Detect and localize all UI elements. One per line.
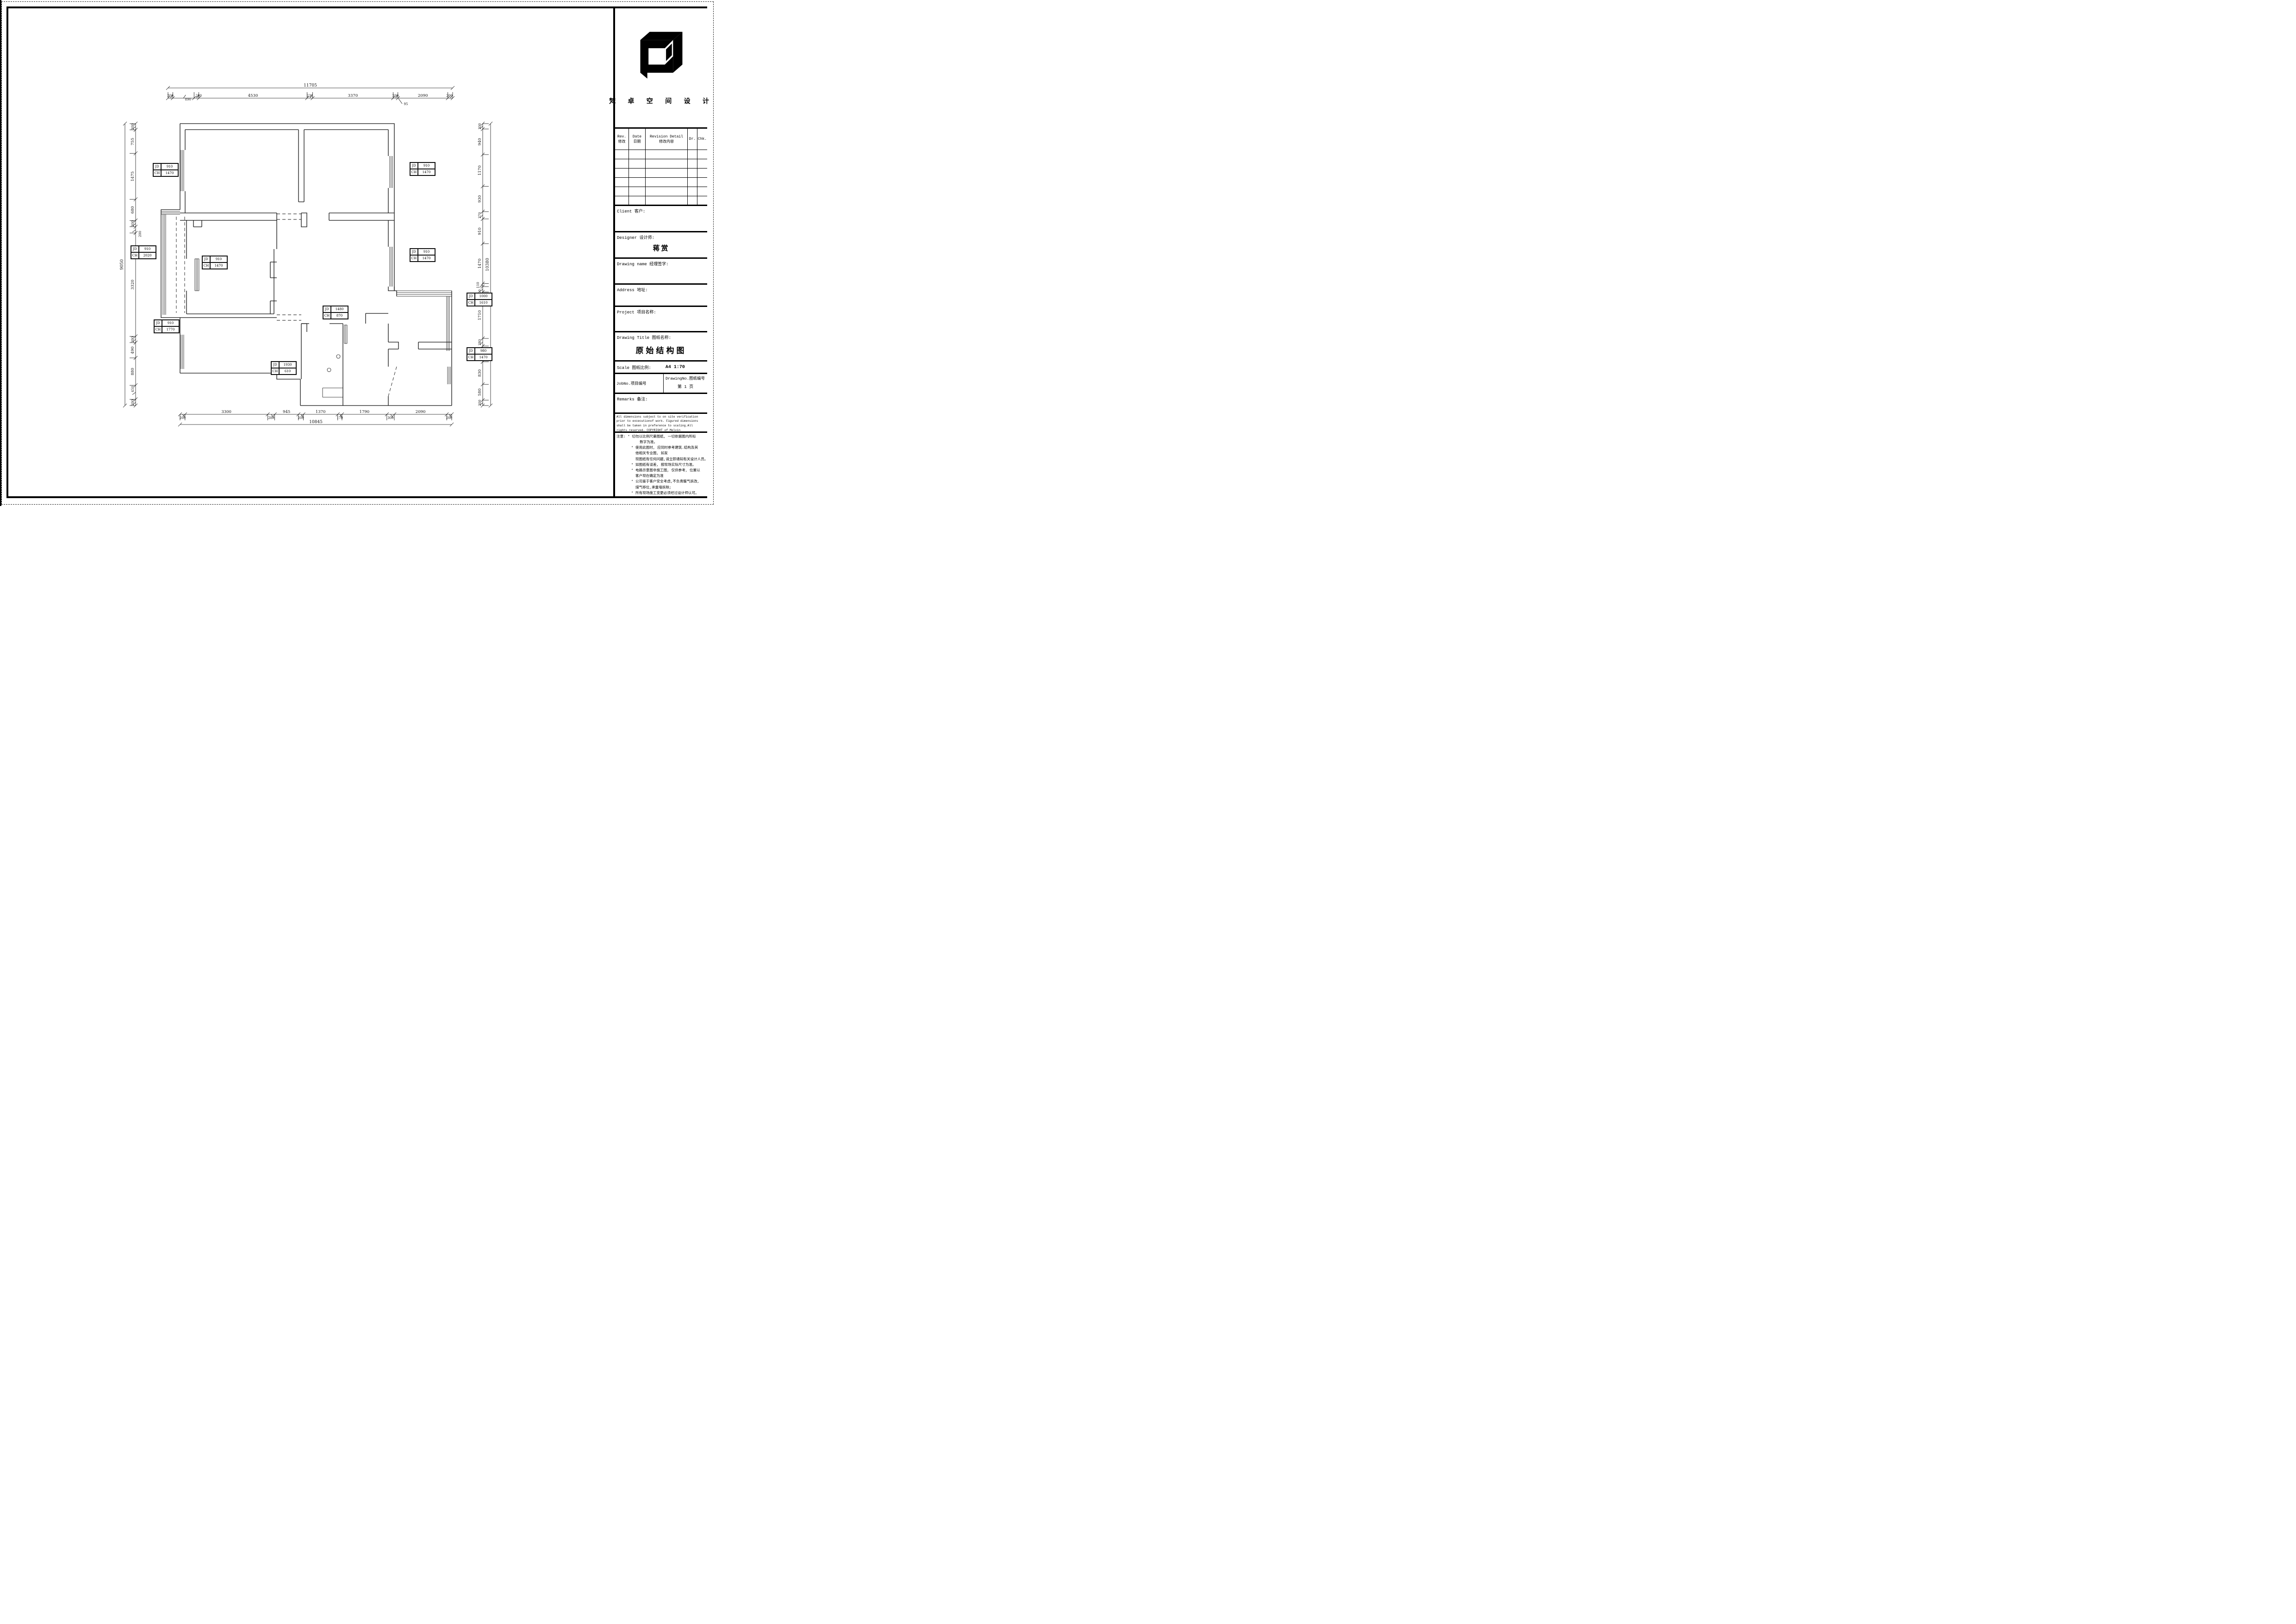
english-note: All dimensions subject to on site verifi… xyxy=(615,414,707,433)
svg-text:230: 230 xyxy=(307,94,313,98)
svg-text:945: 945 xyxy=(283,410,290,414)
drawing-sheet: 1170520089020045302303370200209020090502… xyxy=(0,0,715,506)
drawing-title-value: 原始结构图 xyxy=(615,344,707,356)
svg-text:3320: 3320 xyxy=(131,280,135,290)
company-header: 梵 卓 空 间 设 计 xyxy=(615,8,707,129)
svg-text:10845: 10845 xyxy=(309,420,323,425)
company-logo xyxy=(639,31,684,79)
svg-text:890: 890 xyxy=(185,98,191,101)
jobno-field: JobNo.项目编号 DrawingNo.图纸编号 第 1 页 xyxy=(615,374,707,394)
svg-text:200: 200 xyxy=(138,231,142,237)
svg-text:200: 200 xyxy=(180,416,186,420)
revision-row xyxy=(615,177,707,187)
address-field: Address 地址: xyxy=(615,285,707,307)
svg-text:280: 280 xyxy=(268,416,274,420)
drawing-title-field: Drawing Title 图纸名称: 原始结构图 xyxy=(615,332,707,362)
svg-text:9050: 9050 xyxy=(120,259,124,270)
svg-text:490: 490 xyxy=(131,346,135,354)
svg-text:1475: 1475 xyxy=(131,171,135,181)
svg-text:11705: 11705 xyxy=(304,83,317,88)
drawing-name-field: Drawing name 经理签字: xyxy=(615,259,707,285)
window-label: JD910CH1470 xyxy=(410,162,436,176)
window-label: JD1930CH610 xyxy=(271,361,297,375)
revision-table-header: Rev.修改 Date日期 Revision Detail修改内容 Dr. Ch… xyxy=(615,129,707,150)
date-col: Date日期 xyxy=(629,129,646,150)
svg-text:2090: 2090 xyxy=(418,94,428,98)
floor-plan: 1170520089020045302303370200209020090502… xyxy=(0,0,715,506)
job-no: JobNo.项目编号 xyxy=(615,374,664,393)
fixtures xyxy=(323,355,343,397)
dr-col: Dr. xyxy=(688,129,697,150)
svg-text:1470: 1470 xyxy=(478,259,482,269)
svg-text:200: 200 xyxy=(446,416,452,420)
scale-value: A4 1:70 xyxy=(666,365,685,370)
designer-field: Designer 设计师: 蒋赏 xyxy=(615,232,707,259)
svg-text:200: 200 xyxy=(167,94,173,98)
revision-row xyxy=(615,196,707,205)
svg-text:4530: 4530 xyxy=(248,94,258,98)
client-field: Client 客户: xyxy=(615,206,707,232)
svg-text:200: 200 xyxy=(298,416,304,420)
rev-col: Rev.修改 xyxy=(615,129,629,150)
svg-text:1370: 1370 xyxy=(316,410,326,414)
svg-text:1170: 1170 xyxy=(478,165,482,175)
svg-text:830: 830 xyxy=(478,369,482,377)
window-label: JD910CH1470 xyxy=(410,248,436,262)
revision-row xyxy=(615,159,707,168)
company-name: 梵 卓 空 间 设 计 xyxy=(609,96,713,106)
svg-text:3370: 3370 xyxy=(348,94,358,98)
svg-text:10380: 10380 xyxy=(485,258,490,271)
scale-field: Scale 图纸比例: A4 1:70 xyxy=(615,362,707,374)
window-label: JD1000CH1610 xyxy=(467,293,492,306)
svg-text:580: 580 xyxy=(478,388,482,396)
svg-text:300: 300 xyxy=(387,416,393,420)
svg-text:930: 930 xyxy=(478,195,482,203)
chinese-notes: 注意: * 切勿以比例尺量图纸, 一切依据图内所标 数字为准。 * 使用此图时,… xyxy=(615,433,707,496)
revision-table: Rev.修改 Date日期 Revision Detail修改内容 Dr. Ch… xyxy=(615,129,707,206)
window-label: JD910CH1470 xyxy=(153,163,179,177)
svg-text:680: 680 xyxy=(131,206,135,213)
svg-text:450: 450 xyxy=(131,386,135,392)
designer-value: 蒋赏 xyxy=(615,243,707,253)
svg-text:940: 940 xyxy=(478,138,482,145)
window-label: JD1480CH870 xyxy=(323,306,348,319)
chk-col: Chk. xyxy=(697,129,707,150)
title-block: 梵 卓 空 间 设 计 Rev.修改 Date日期 Revision Detai… xyxy=(613,8,707,496)
dimension-lines: 1170520089020045302303370200209020090502… xyxy=(120,83,492,426)
detail-col: Revision Detail修改内容 xyxy=(646,129,688,150)
page-number: 第 1 页 xyxy=(664,383,707,389)
revision-row xyxy=(615,150,707,159)
project-field: Project 项目名称: xyxy=(615,307,707,332)
svg-text:1790: 1790 xyxy=(360,410,370,414)
window-label: JD910CH1470 xyxy=(202,256,228,269)
svg-text:755: 755 xyxy=(131,138,135,145)
window-label: JD910CH1770 xyxy=(154,319,180,333)
remarks-field: Remarks 备注: xyxy=(615,394,707,414)
svg-text:2090: 2090 xyxy=(416,410,426,414)
svg-text:1710: 1710 xyxy=(478,310,482,320)
svg-text:95: 95 xyxy=(404,102,408,106)
window-label: JD910CH2020 xyxy=(131,245,156,259)
svg-text:910: 910 xyxy=(478,228,482,235)
svg-text:3300: 3300 xyxy=(221,410,231,414)
drawing-no: DrawingNo.图纸编号 第 1 页 xyxy=(664,374,707,393)
svg-text:200: 200 xyxy=(446,94,452,98)
revision-row xyxy=(615,168,707,177)
svg-text:200: 200 xyxy=(392,94,398,98)
svg-text:880: 880 xyxy=(131,368,135,375)
window-label: JD980CH1470 xyxy=(467,347,492,361)
revision-row xyxy=(615,187,707,196)
